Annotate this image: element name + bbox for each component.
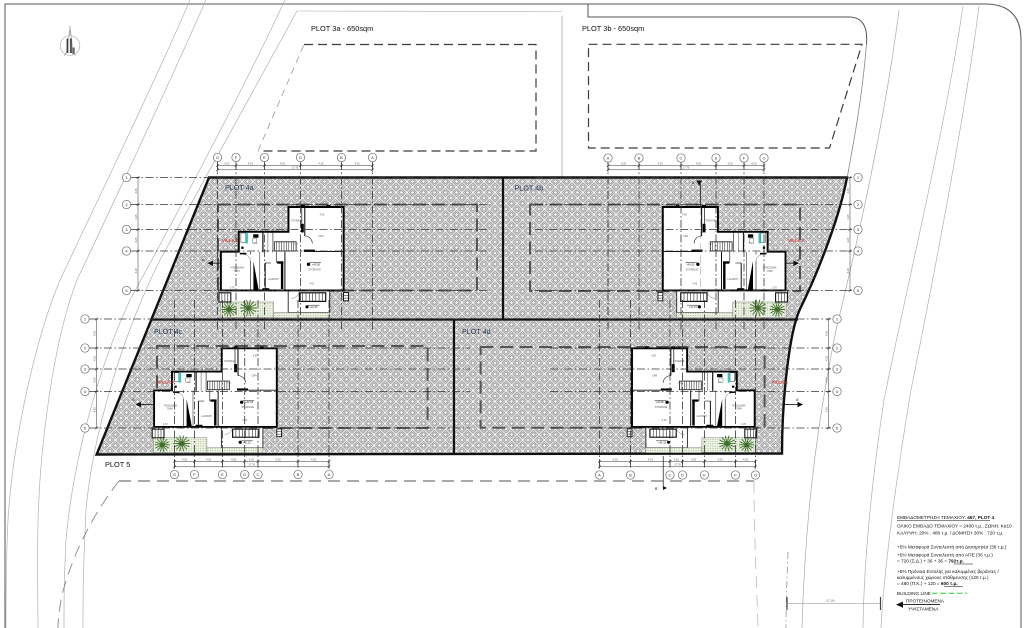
svg-text:4.20: 4.20 — [231, 457, 237, 461]
svg-text:17.76: 17.76 — [683, 166, 690, 170]
svg-text:17.76: 17.76 — [674, 463, 681, 467]
svg-text:A: A — [598, 473, 601, 478]
svg-text:4.20: 4.20 — [648, 457, 654, 461]
svg-text:ΤΙΜΗ: ΤΙΜΗ — [234, 270, 240, 273]
svg-text:4.25: 4.25 — [846, 188, 850, 194]
svg-text:4.20: 4.20 — [224, 161, 230, 165]
svg-text:4.25: 4.25 — [824, 407, 828, 413]
svg-text:PLOT 4b: PLOT 4b — [515, 184, 544, 193]
svg-text:4.20: 4.20 — [691, 457, 697, 461]
svg-text:E: E — [715, 156, 718, 161]
svg-text:4.43: 4.43 — [693, 282, 698, 285]
svg-text:D: D — [681, 473, 684, 478]
svg-text:3.70: 3.70 — [741, 423, 746, 426]
svg-text:PLOT 3a - 650sqm: PLOT 3a - 650sqm — [311, 24, 373, 33]
svg-text:4.20: 4.20 — [657, 161, 663, 165]
svg-text:4.20: 4.20 — [612, 457, 618, 461]
svg-text:4.25: 4.25 — [824, 377, 828, 383]
svg-text:PLOT 4a: PLOT 4a — [225, 183, 254, 192]
svg-text:4.20: 4.20 — [206, 457, 212, 461]
svg-text:B: B — [638, 156, 641, 161]
svg-text:CPA: CPA — [652, 374, 657, 378]
svg-text:CPA: CPA — [252, 374, 257, 378]
svg-text:VILLA 2: VILLA 2 — [788, 238, 805, 243]
svg-text:καλυμμένους χώρους στάθμευσης: καλυμμένους χώρους στάθμευσης (120 τ.μ.) — [897, 574, 989, 580]
svg-text:B': B' — [655, 487, 658, 491]
svg-text:LAUNDRY: LAUNDRY — [727, 278, 738, 281]
svg-text:LAUNDRY: LAUNDRY — [201, 415, 212, 418]
svg-text:4.25: 4.25 — [92, 330, 96, 336]
svg-text:WC: WC — [749, 243, 753, 245]
svg-text:4.20: 4.20 — [280, 161, 286, 165]
svg-text:4.25: 4.25 — [92, 355, 96, 361]
svg-text:STORAGE: STORAGE — [224, 360, 236, 363]
svg-text:4.25: 4.25 — [134, 237, 138, 243]
svg-text:= 720 (Σ.Δ.) + 36 + 36 = 792τ.: = 720 (Σ.Δ.) + 36 + 36 = 792τ.μ. — [897, 559, 964, 564]
svg-text:PLOT 3b - 650sqm: PLOT 3b - 650sqm — [582, 24, 644, 33]
svg-text:+43.05: +43.05 — [312, 262, 321, 266]
svg-text:LAUNDRY: LAUNDRY — [697, 415, 708, 418]
svg-text:17.76: 17.76 — [249, 463, 256, 467]
svg-text:4.25: 4.25 — [846, 237, 850, 243]
svg-text:A: A — [607, 156, 610, 161]
svg-text:4.90: 4.90 — [682, 214, 687, 217]
svg-text:+43.05: +43.05 — [686, 262, 695, 266]
svg-text:CPA: CPA — [683, 234, 688, 238]
svg-text:+41.15: +41.15 — [309, 305, 318, 309]
svg-text:C: C — [257, 472, 260, 477]
svg-text:17.00: 17.00 — [826, 599, 835, 603]
svg-text:STORAGE: STORAGE — [704, 220, 716, 223]
svg-text:4.25: 4.25 — [846, 214, 850, 220]
svg-text:4.25: 4.25 — [134, 268, 138, 274]
svg-text:4.20: 4.20 — [354, 161, 360, 165]
svg-text:LAUNDRY: LAUNDRY — [268, 278, 279, 281]
svg-text:ΤΙΜΗ: ΤΙΜΗ — [767, 270, 773, 273]
svg-text:BUILDING LINE: BUILDING LINE — [897, 591, 931, 596]
svg-text:B: B — [297, 472, 300, 477]
svg-text:WC: WC — [718, 382, 722, 384]
svg-text:+43.05: +43.05 — [245, 400, 254, 404]
svg-text:+5% Πρόνοια Εντολής για καλυμμ: +5% Πρόνοια Εντολής για καλυμμένες βεράν… — [897, 568, 999, 574]
svg-text:+5% Μεταφορά Συντελεστή από Δι: +5% Μεταφορά Συντελεστή από Διατηρητέα (… — [897, 544, 1007, 550]
svg-text:ΕΜΒΑΔΟΜΕΤΡΗΣΗ ΤΕΜΑΧΙΟΥ: 467, P: ΕΜΒΑΔΟΜΕΤΡΗΣΗ ΤΕΜΑΧΙΟΥ: 467, PLOT 4 — [897, 515, 995, 520]
svg-text:4.43: 4.43 — [662, 419, 667, 422]
svg-text:D: D — [243, 472, 246, 477]
svg-text:4.20: 4.20 — [311, 457, 317, 461]
svg-text:G: G — [754, 473, 757, 478]
svg-text:WC: WC — [254, 243, 258, 245]
svg-text:STORAGE: STORAGE — [686, 268, 699, 272]
svg-text:4.20: 4.20 — [275, 457, 281, 461]
svg-text:D: D — [299, 155, 302, 160]
svg-text:STORAGE: STORAGE — [673, 360, 685, 363]
svg-text:= 480 (Π.Κ.) + 120 = 600 τ.μ.: = 480 (Π.Κ.) + 120 = 600 τ.μ. — [897, 581, 958, 586]
svg-text:A': A' — [796, 398, 799, 402]
svg-text:4.20: 4.20 — [182, 457, 188, 461]
svg-text:E: E — [263, 155, 266, 160]
svg-text:4.20: 4.20 — [621, 161, 627, 165]
svg-text:4.20: 4.20 — [717, 457, 723, 461]
svg-text:+5% Μεταφορά Συντελεστή από ΑΠ: +5% Μεταφορά Συντελεστή από ΑΠΕ (36 τ.μ.… — [897, 552, 993, 558]
svg-text:PLOT 5: PLOT 5 — [105, 460, 130, 469]
svg-text:ΤΙΜΗ: ΤΙΜΗ — [736, 408, 742, 411]
svg-text:3.70: 3.70 — [163, 423, 168, 426]
svg-text:PLOT 4d: PLOT 4d — [462, 327, 491, 336]
svg-text:ΟΛΙΚΟ ΕΜΒΑΔΟ ΤΕΜΑΧΙΟΥ = 2400 τ: ΟΛΙΚΟ ΕΜΒΑΔΟ ΤΕΜΑΧΙΟΥ = 2400 τ.μ., ΖΩΝΗ:… — [897, 524, 1012, 529]
svg-text:4.25: 4.25 — [134, 188, 138, 194]
svg-text:A: A — [371, 155, 374, 160]
svg-text:4.20: 4.20 — [751, 161, 757, 165]
svg-text:STORAGE: STORAGE — [308, 268, 321, 272]
svg-text:CPA: CPA — [318, 234, 323, 238]
svg-text:ΤΙΜΗ: ΤΙΜΗ — [167, 408, 173, 411]
svg-text:4.20: 4.20 — [743, 457, 749, 461]
svg-text:WC: WC — [187, 382, 191, 384]
svg-text:17.76: 17.76 — [292, 166, 299, 170]
svg-text:G: G — [173, 472, 176, 477]
svg-text:4.90: 4.90 — [253, 354, 258, 357]
svg-text:4.90: 4.90 — [651, 354, 656, 357]
svg-text:G: G — [762, 156, 765, 161]
svg-text:4.20: 4.20 — [674, 457, 680, 461]
svg-text:4.20: 4.20 — [318, 161, 324, 165]
svg-text:C: C — [680, 156, 683, 161]
svg-text:4.20: 4.20 — [696, 161, 702, 165]
svg-text:4.90: 4.90 — [320, 214, 325, 217]
svg-text:3.70: 3.70 — [772, 286, 777, 289]
svg-text:A: A — [328, 472, 331, 477]
svg-text:E: E — [221, 472, 224, 477]
svg-text:4.25: 4.25 — [134, 214, 138, 220]
svg-text:4.25: 4.25 — [824, 355, 828, 361]
svg-text:STORAGE: STORAGE — [291, 220, 303, 223]
svg-text:STORAGE: STORAGE — [241, 405, 254, 409]
svg-text:STORAGE: STORAGE — [655, 405, 668, 409]
svg-text:ΠΡΟΤΕΙΝΟΜΕΝΑ: ΠΡΟΤΕΙΝΟΜΕΝΑ — [906, 598, 945, 603]
svg-text:VILLA 4: VILLA 4 — [772, 380, 789, 385]
svg-text:+43.05: +43.05 — [656, 400, 665, 404]
svg-text:B: B — [629, 473, 632, 478]
svg-text:B: B — [340, 155, 343, 160]
svg-text:A': A' — [797, 258, 800, 262]
svg-text:G: G — [216, 155, 219, 160]
svg-text:4.20: 4.20 — [248, 161, 254, 165]
svg-text:E: E — [703, 473, 706, 478]
svg-text:4.25: 4.25 — [846, 268, 850, 274]
svg-text:ΚΑΛΥΨΗ: 20% : 480 τ.μ. / ΔΟΜΗΣ: ΚΑΛΥΨΗ: 20% : 480 τ.μ. / ΔΟΜΗΣΗ 30% : 72… — [897, 531, 1003, 536]
svg-text:PLOT 4c: PLOT 4c — [154, 327, 183, 336]
svg-text:C: C — [669, 473, 672, 478]
svg-text:+41.15: +41.15 — [243, 440, 252, 444]
svg-text:4.25: 4.25 — [824, 330, 828, 336]
svg-text:3.70: 3.70 — [230, 286, 235, 289]
svg-text:ΥΨΙΣΤΑΜΕΝΑ: ΥΨΙΣΤΑΜΕΝΑ — [908, 607, 939, 612]
svg-text:4.25: 4.25 — [92, 407, 96, 413]
svg-text:+41.15: +41.15 — [658, 440, 667, 444]
svg-text:4.20: 4.20 — [249, 457, 255, 461]
svg-text:4.43: 4.43 — [309, 282, 314, 285]
svg-text:VILLA 3: VILLA 3 — [158, 380, 175, 385]
svg-text:4.25: 4.25 — [92, 377, 96, 383]
svg-text:+41.15: +41.15 — [689, 305, 698, 309]
svg-text:4.20: 4.20 — [727, 161, 733, 165]
